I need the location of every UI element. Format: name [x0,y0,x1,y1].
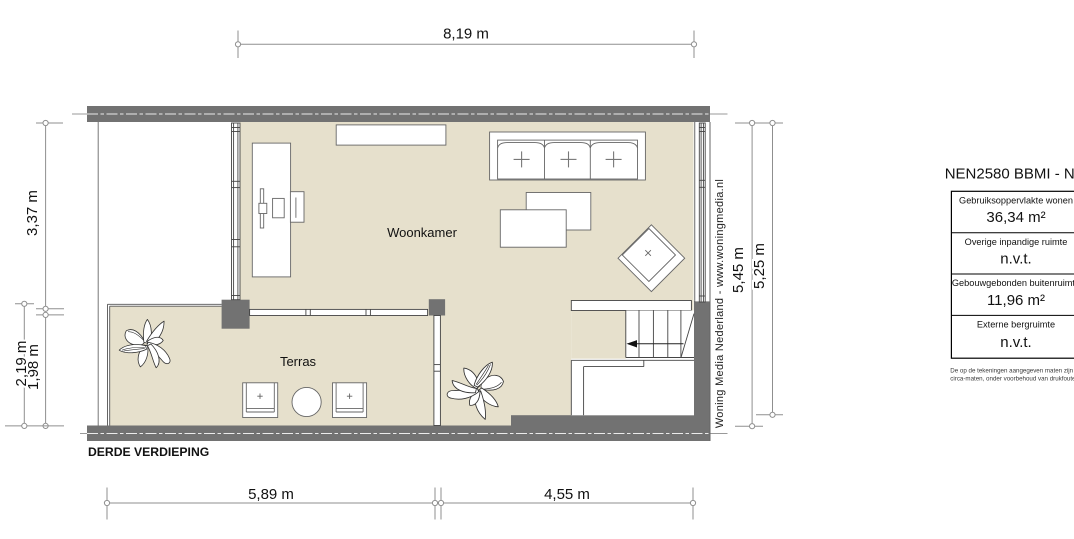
svg-text:circa-maten, onder voorbehoud: circa-maten, onder voorbehoud van drukfo… [950,375,1074,382]
svg-text:DERDE VERDIEPING: DERDE VERDIEPING [88,445,209,459]
svg-text:3,37 m: 3,37 m [24,190,41,236]
svg-text:Woonkamer: Woonkamer [387,225,458,240]
svg-text:Gebouwgebonden buitenruimte: Gebouwgebonden buitenruimte [952,278,1074,288]
svg-text:n.v.t.: n.v.t. [1000,251,1031,268]
svg-text:Externe bergruimte: Externe bergruimte [977,320,1055,330]
svg-text:Woning Media Nederland - www.w: Woning Media Nederland - www.woningmedia… [714,179,726,428]
svg-text:2,19 m: 2,19 m [13,341,30,387]
svg-text:De op de tekeningen aangegeven: De op de tekeningen aangegeven maten zij… [950,367,1074,374]
svg-text:Overige inpandige ruimte: Overige inpandige ruimte [965,237,1068,247]
svg-text:n.v.t.: n.v.t. [1000,334,1031,351]
svg-text:36,34 m²: 36,34 m² [986,209,1045,226]
svg-text:11,96 m²: 11,96 m² [987,292,1045,309]
svg-text:5,89 m: 5,89 m [248,486,294,503]
svg-text:NEN2580 BBMI - NVM: NEN2580 BBMI - NVM [945,166,1074,183]
svg-text:8,19 m: 8,19 m [443,26,489,43]
svg-text:Gebruiksoppervlakte wonen: Gebruiksoppervlakte wonen [959,196,1073,206]
svg-text:4,55 m: 4,55 m [544,486,590,503]
svg-text:5,45 m: 5,45 m [730,247,747,293]
svg-text:Terras: Terras [280,354,317,369]
svg-text:5,25 m: 5,25 m [751,243,768,289]
